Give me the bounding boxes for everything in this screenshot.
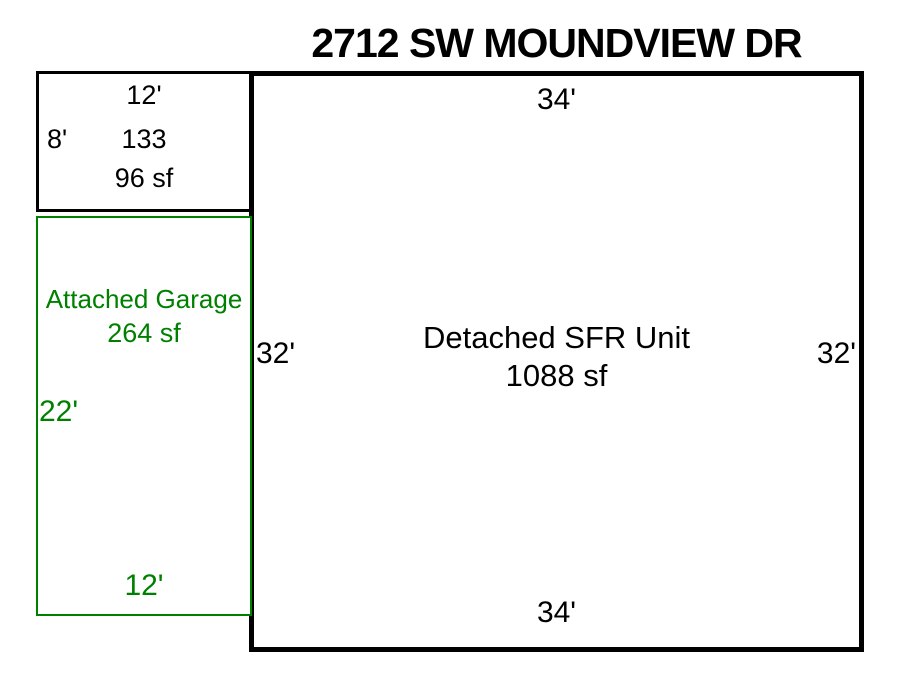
- main-unit-area: 1088 sf: [254, 357, 859, 395]
- structure-133-mid-row: 8' 133: [39, 123, 249, 155]
- garage-area: 264 sf: [38, 317, 250, 349]
- structure-133-code: 133: [121, 124, 166, 154]
- property-sketch: 2712 SW MOUNDVIEW DR 34' 32' 32' 34' Det…: [0, 0, 900, 675]
- garage-dim-left: 22': [39, 394, 78, 430]
- main-unit-dim-top: 34': [254, 82, 859, 118]
- sketch-title: 2712 SW MOUNDVIEW DR: [249, 20, 864, 66]
- main-unit-name: Detached SFR Unit: [254, 319, 859, 357]
- attached-garage-outline: Attached Garage 264 sf 22' 12': [36, 216, 252, 616]
- main-unit-label: Detached SFR Unit 1088 sf: [254, 319, 859, 395]
- structure-133-area: 96 sf: [39, 162, 249, 194]
- main-unit-dim-bottom: 34': [254, 595, 859, 631]
- main-unit-outline: 34' 32' 32' 34' Detached SFR Unit 1088 s…: [249, 71, 864, 652]
- garage-name: Attached Garage: [38, 284, 250, 314]
- structure-133-dim-left: 8': [47, 123, 67, 155]
- garage-dim-bottom: 12': [38, 568, 250, 604]
- structure-133-outline: 12' 8' 133 96 sf: [36, 71, 252, 212]
- structure-133-dim-top: 12': [39, 79, 249, 111]
